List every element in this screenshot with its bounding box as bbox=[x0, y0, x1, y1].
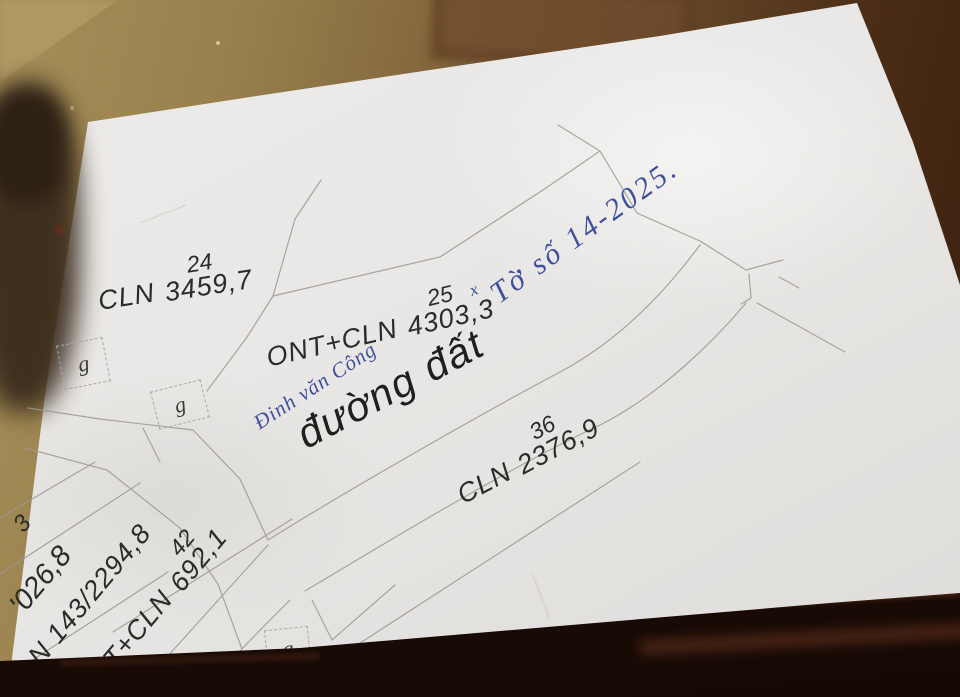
photo-of-cadastral-map-on-table: CLN 24 3459,7 ONT+CLN 25 4303,3 CLN 36 2… bbox=[0, 0, 960, 697]
out-of-focus-shadow bbox=[0, 92, 66, 202]
dust-speck bbox=[216, 41, 220, 45]
building-symbol-box: g bbox=[56, 337, 111, 390]
table-edge-highlight bbox=[640, 623, 960, 654]
building-symbol-g: g bbox=[172, 391, 189, 419]
red-blur-spot bbox=[56, 226, 62, 235]
dust-speck bbox=[70, 106, 74, 110]
building-symbol-g: g bbox=[76, 350, 92, 378]
